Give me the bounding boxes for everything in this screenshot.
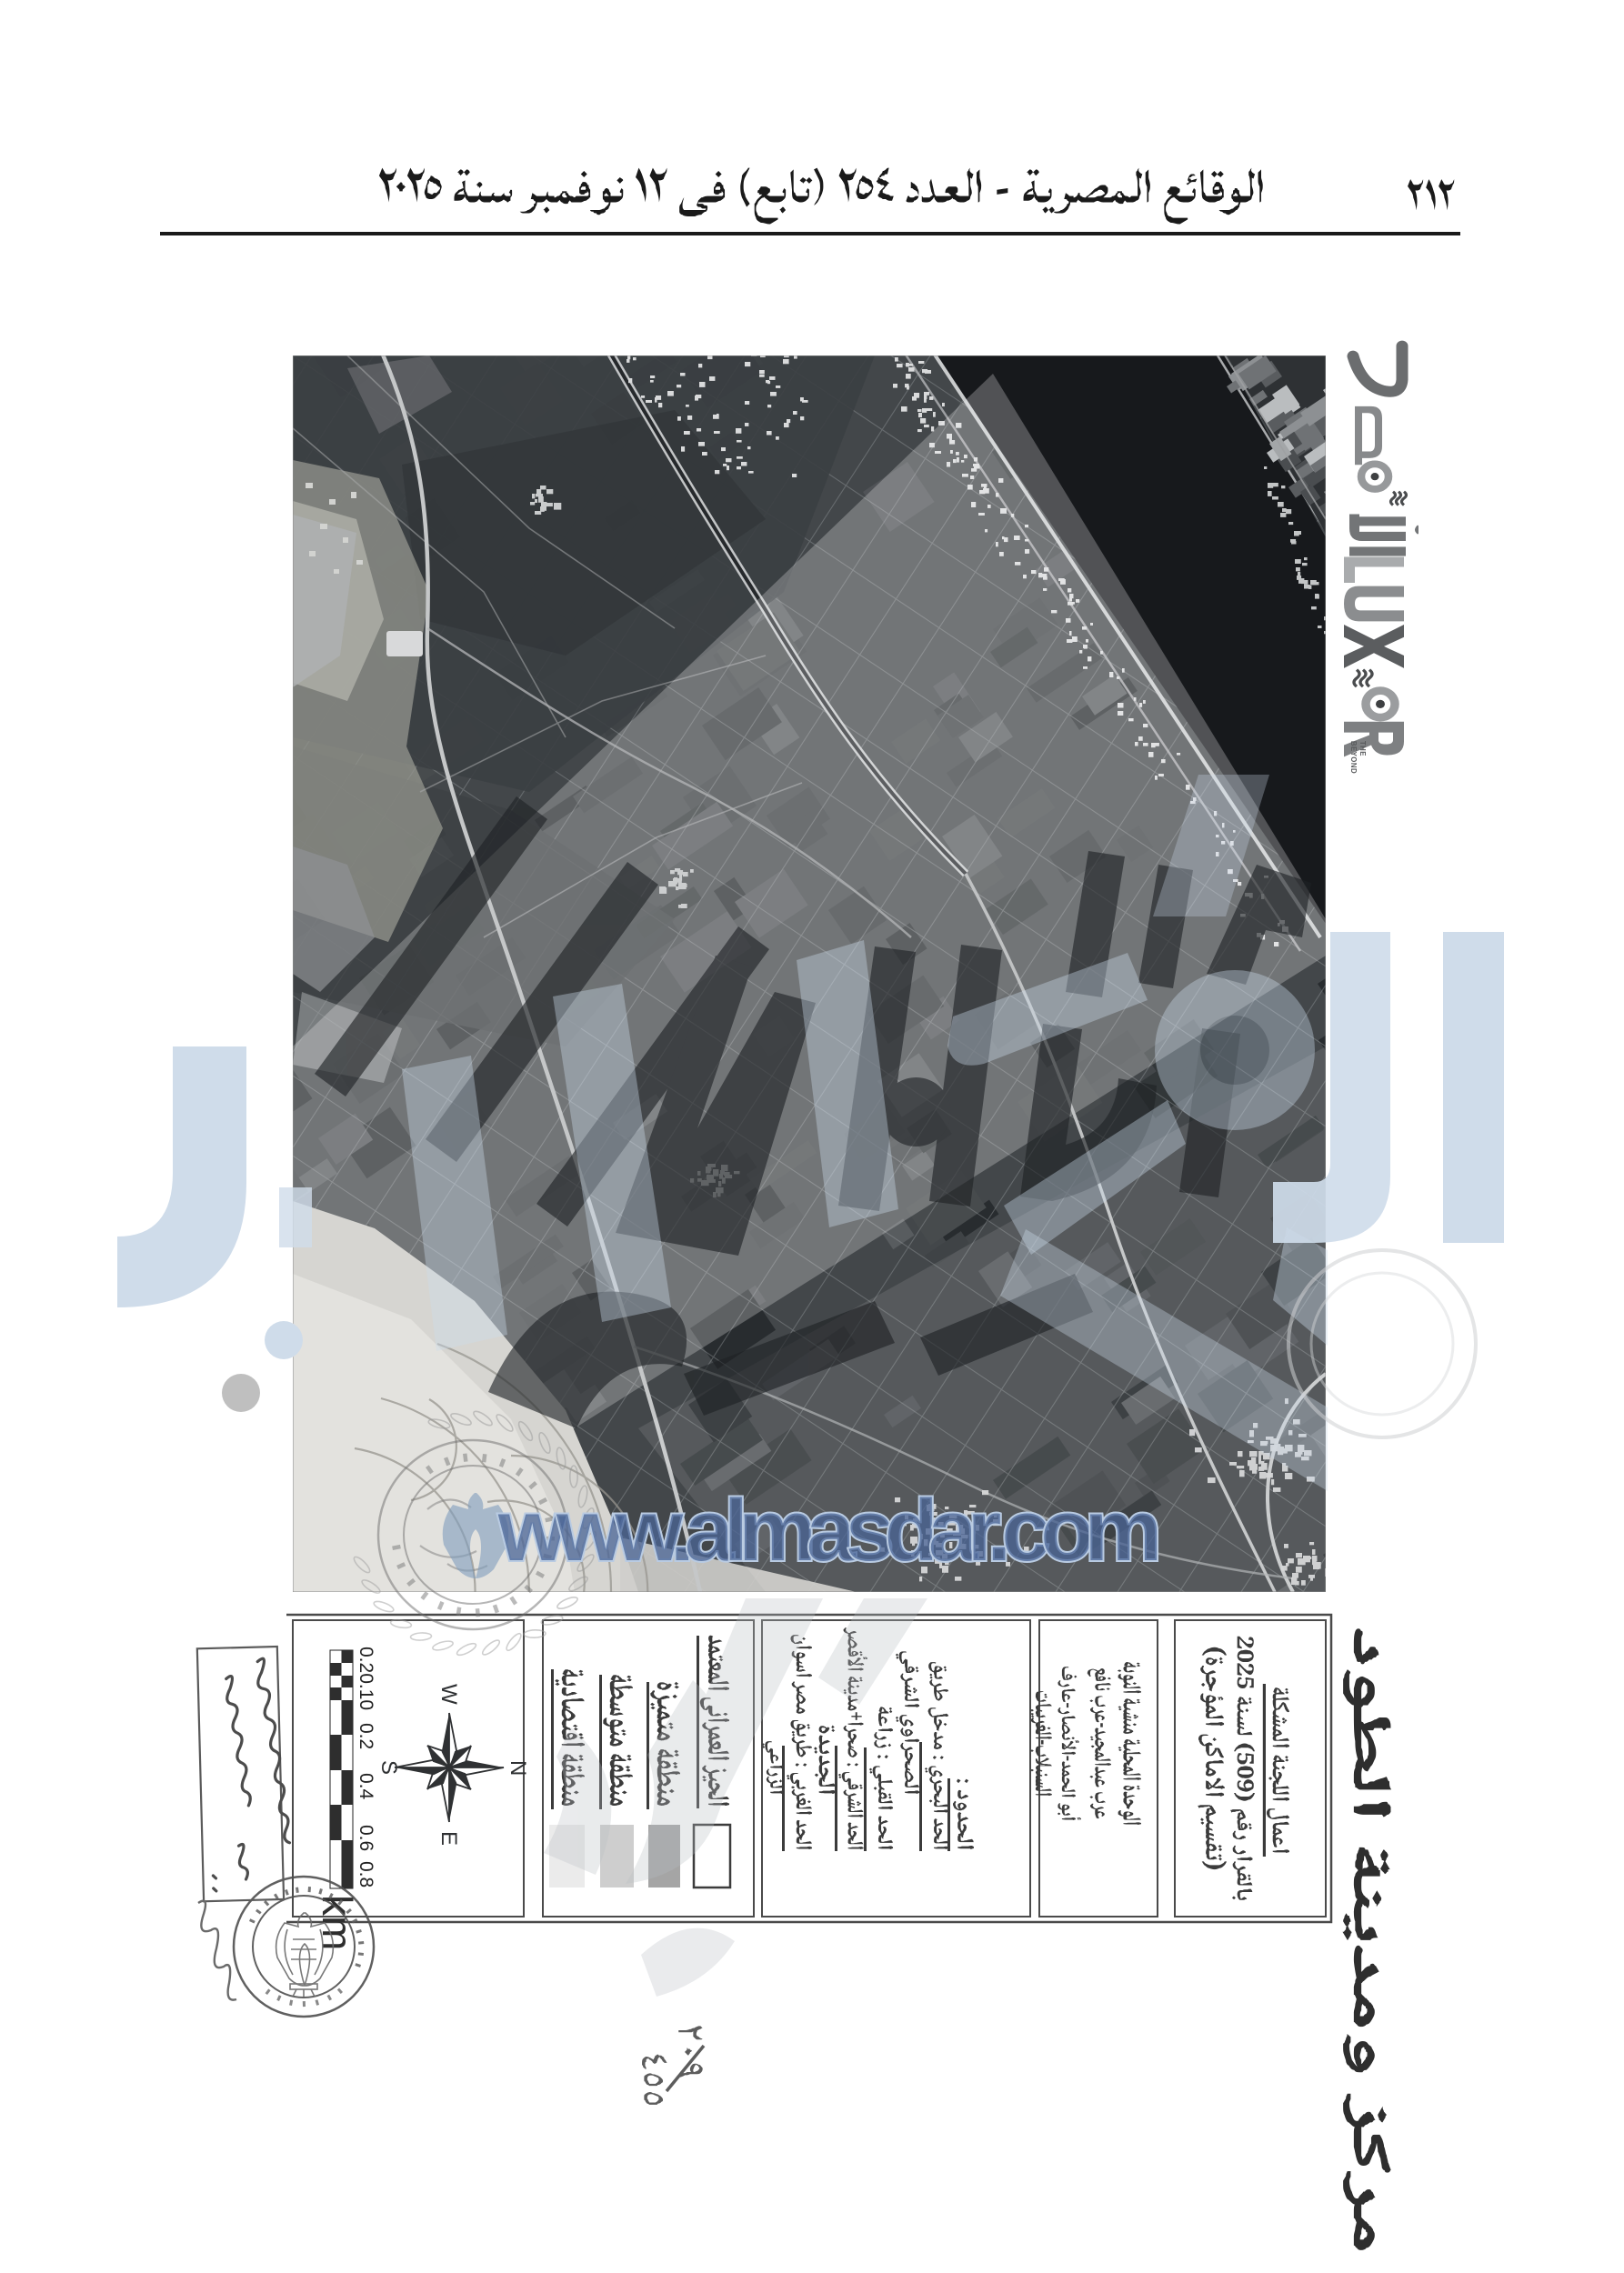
svg-text:www.almasdar.com: www.almasdar.com xyxy=(497,1482,1162,1579)
